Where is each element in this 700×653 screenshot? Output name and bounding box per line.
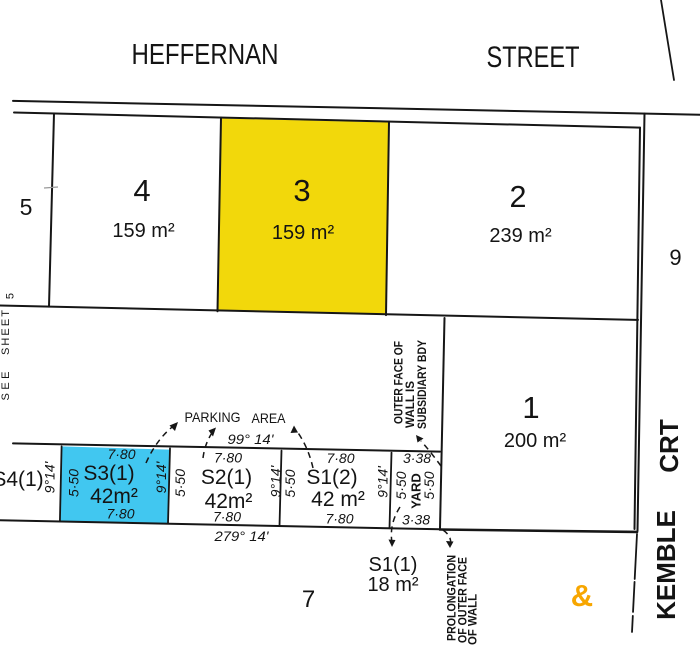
svg-text:7·80: 7·80	[214, 450, 242, 466]
svg-text:STREET: STREET	[487, 41, 580, 74]
svg-text:7·80: 7·80	[213, 509, 241, 525]
svg-text:4: 4	[133, 173, 150, 208]
svg-text:5·50: 5·50	[393, 471, 409, 499]
svg-text:2: 2	[510, 179, 527, 214]
svg-text:42 m²: 42 m²	[311, 488, 365, 511]
svg-text:9: 9	[669, 245, 681, 270]
svg-text:SEE: SEE	[0, 372, 12, 401]
svg-text:7·80: 7·80	[326, 450, 354, 466]
svg-text:3·38: 3·38	[403, 450, 431, 466]
svg-text:7·80: 7·80	[106, 506, 134, 522]
svg-text:7·80: 7·80	[107, 446, 135, 462]
svg-text:5: 5	[20, 194, 33, 220]
svg-text:200 m²: 200 m²	[504, 430, 567, 452]
svg-text:5·50: 5·50	[282, 469, 298, 497]
svg-text:&: &	[571, 578, 593, 613]
svg-text:OF WALL: OF WALL	[466, 594, 480, 645]
svg-text:159 m²: 159 m²	[272, 222, 335, 244]
svg-text:PARKING: PARKING	[185, 409, 241, 425]
svg-text:SHEET: SHEET	[0, 310, 12, 355]
svg-text:KEMBLE: KEMBLE	[651, 510, 681, 620]
svg-text:159 m²: 159 m²	[112, 220, 175, 242]
svg-text:9°14': 9°14'	[42, 460, 58, 493]
svg-text:18 m²: 18 m²	[367, 574, 418, 596]
svg-text:5: 5	[5, 293, 17, 299]
svg-text:S3(1): S3(1)	[83, 462, 134, 485]
svg-text:1: 1	[522, 390, 539, 425]
svg-text:3: 3	[293, 173, 310, 208]
svg-text:9°14': 9°14'	[153, 460, 169, 493]
svg-text:239 m²: 239 m²	[489, 225, 552, 247]
svg-text:HEFFERNAN: HEFFERNAN	[132, 39, 279, 71]
svg-text:9°14': 9°14'	[268, 464, 284, 497]
svg-text:S1(2): S1(2)	[306, 466, 357, 489]
svg-text:YARD: YARD	[409, 473, 424, 509]
svg-text:279° 14': 279° 14'	[213, 528, 269, 544]
svg-text:9°14': 9°14'	[375, 465, 391, 498]
svg-text:S4(1): S4(1)	[0, 468, 44, 491]
svg-text:3·38: 3·38	[402, 512, 430, 528]
svg-text:S1(1): S1(1)	[369, 554, 418, 576]
svg-text:CRT: CRT	[654, 419, 684, 473]
svg-text:99° 14': 99° 14'	[228, 431, 275, 447]
svg-text:S2(1): S2(1)	[201, 466, 252, 489]
svg-text:7: 7	[302, 586, 315, 613]
svg-text:AREA: AREA	[252, 410, 287, 426]
svg-text:7·80: 7·80	[325, 511, 353, 527]
svg-text:SUBSIDIARY BDY: SUBSIDIARY BDY	[415, 340, 429, 429]
svg-text:5·50: 5·50	[172, 469, 188, 497]
svg-text:5·50: 5·50	[66, 469, 82, 497]
